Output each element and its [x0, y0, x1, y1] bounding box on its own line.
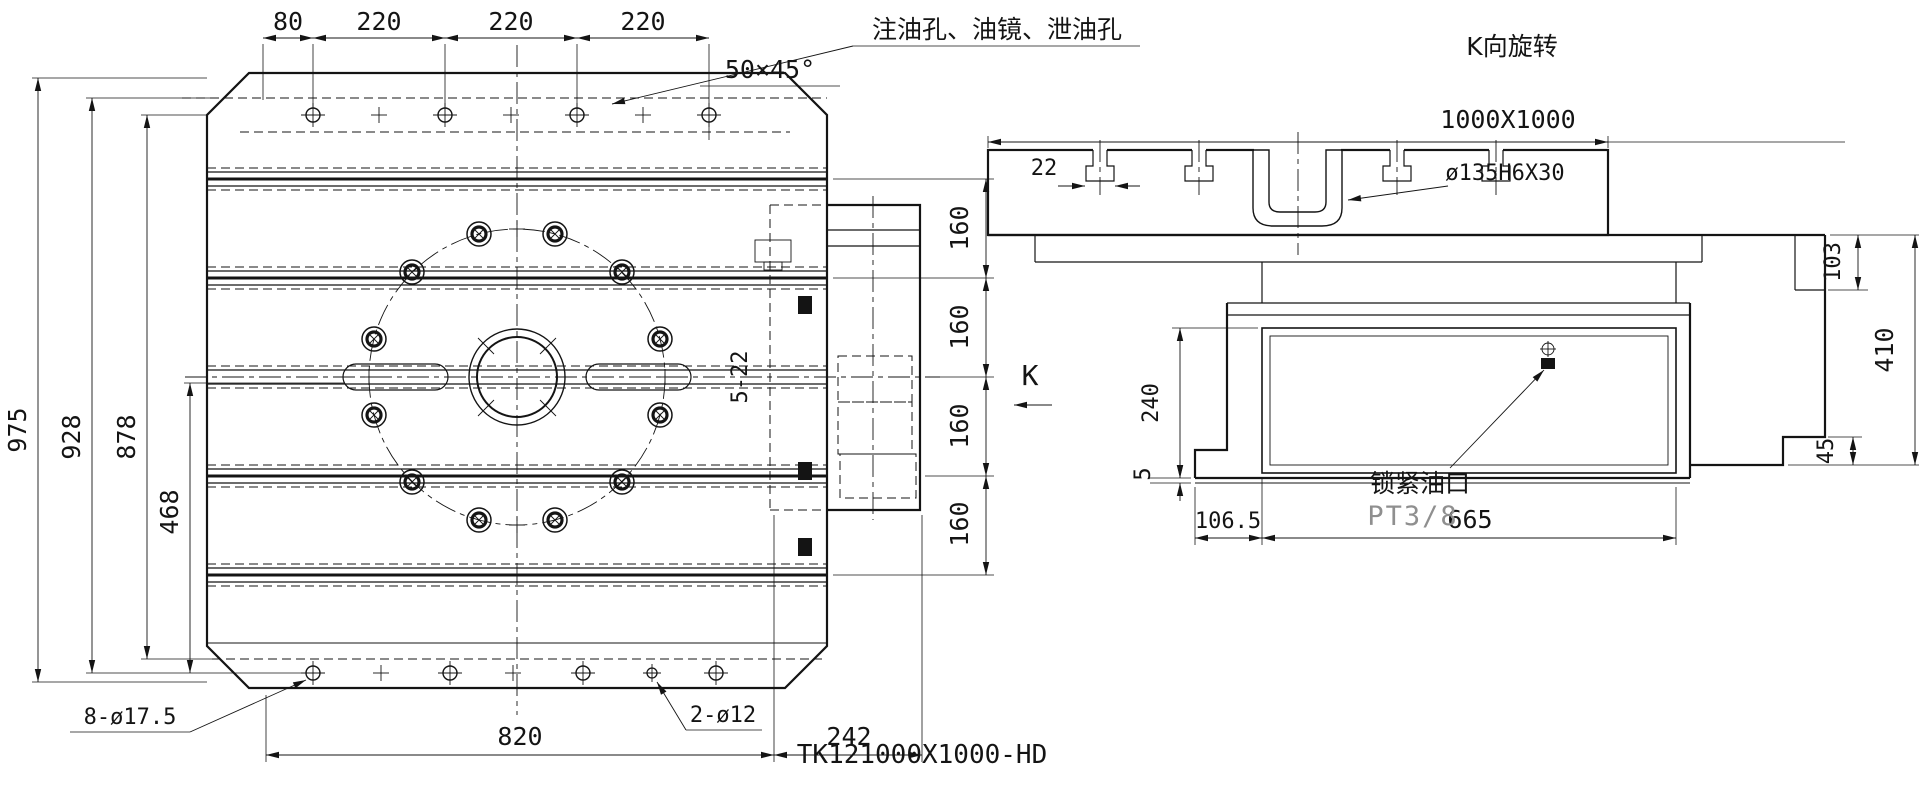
dim-878: 878	[112, 414, 141, 459]
bore-note: ø135H6X30	[1348, 161, 1565, 200]
holes-2-label: 2-ø12	[690, 703, 756, 728]
dim-220: 220	[356, 7, 401, 36]
dim-410: 410	[1870, 327, 1899, 372]
dim-45: 45	[1814, 438, 1839, 465]
dim-160: 160	[945, 501, 974, 546]
chamfer-note: 50×45°	[700, 55, 840, 86]
left-dimensions: 975 928 878 468	[3, 78, 345, 682]
slot-width-dim: 22	[1031, 156, 1140, 186]
clamp-block	[798, 296, 812, 314]
oil-holes-label: 注油孔、油镜、泄油孔	[872, 15, 1122, 44]
clamp-block	[798, 462, 812, 480]
dim-240: 240	[1139, 383, 1164, 423]
oil-hole-note: 注油孔、油镜、泄油孔	[612, 15, 1140, 104]
lock-port-symbol	[1540, 341, 1556, 369]
table-size-dim: 1000X1000	[988, 105, 1845, 148]
dim-160: 160	[945, 205, 974, 250]
dim-160: 160	[945, 403, 974, 448]
slot-count-label: 5-22	[728, 351, 753, 404]
dim-80: 80	[273, 7, 303, 36]
drive-housing	[755, 196, 920, 556]
lock-port-label: 锁紧油口	[1370, 469, 1470, 498]
dim-975: 975	[3, 407, 32, 452]
dim-106-5: 106.5	[1195, 509, 1261, 534]
plan-view	[182, 45, 940, 715]
drawing-title: TK121000X1000-HD	[797, 740, 1047, 770]
holes-2-note: 2-ø12	[657, 682, 762, 730]
view-k-marker: K	[1014, 359, 1052, 405]
k-view-title: K向旋转	[1466, 32, 1557, 61]
base-body	[988, 235, 1825, 483]
dim-103: 103	[1821, 242, 1846, 282]
dim-220: 220	[488, 7, 533, 36]
base-cavity	[1262, 328, 1676, 473]
dim-220: 220	[620, 7, 665, 36]
table-size-label: 1000X1000	[1440, 105, 1575, 134]
k-view-dimensions: 1000X1000 ø135H6X30 22 240 5	[988, 105, 1919, 545]
right-column	[1690, 235, 1825, 465]
slot-width-label: 22	[1031, 156, 1058, 181]
dim-820: 820	[497, 722, 542, 751]
dim-5: 5	[1131, 467, 1156, 480]
clamp-block	[798, 538, 812, 556]
holes-8-label: 8-ø17.5	[84, 705, 177, 730]
bore-pocket	[1253, 132, 1342, 255]
dim-928: 928	[57, 414, 86, 459]
chamfer-label: 50×45°	[725, 55, 815, 84]
view-k-label: K	[1022, 359, 1039, 392]
bottom-dimensions: 820 242	[266, 515, 922, 762]
bottom-hole-row	[301, 661, 728, 685]
thread-label: PT3/8	[1367, 501, 1458, 532]
lock-port-note: 锁紧油口 PT3/8	[1367, 370, 1544, 532]
rotary-table-drawing: 80 220 220 220 注油孔、油镜、泄油孔 50×45°	[0, 0, 1919, 791]
bore-label: ø135H6X30	[1445, 161, 1564, 186]
k-view: K向旋转	[988, 32, 1825, 483]
dim-468: 468	[155, 489, 184, 534]
height-dims: 103 410 45	[1788, 235, 1919, 465]
dim-160: 160	[945, 304, 974, 349]
engineering-drawing-sheet: 80 220 220 220 注油孔、油镜、泄油孔 50×45°	[0, 0, 1919, 791]
top-hole-row	[301, 103, 721, 127]
